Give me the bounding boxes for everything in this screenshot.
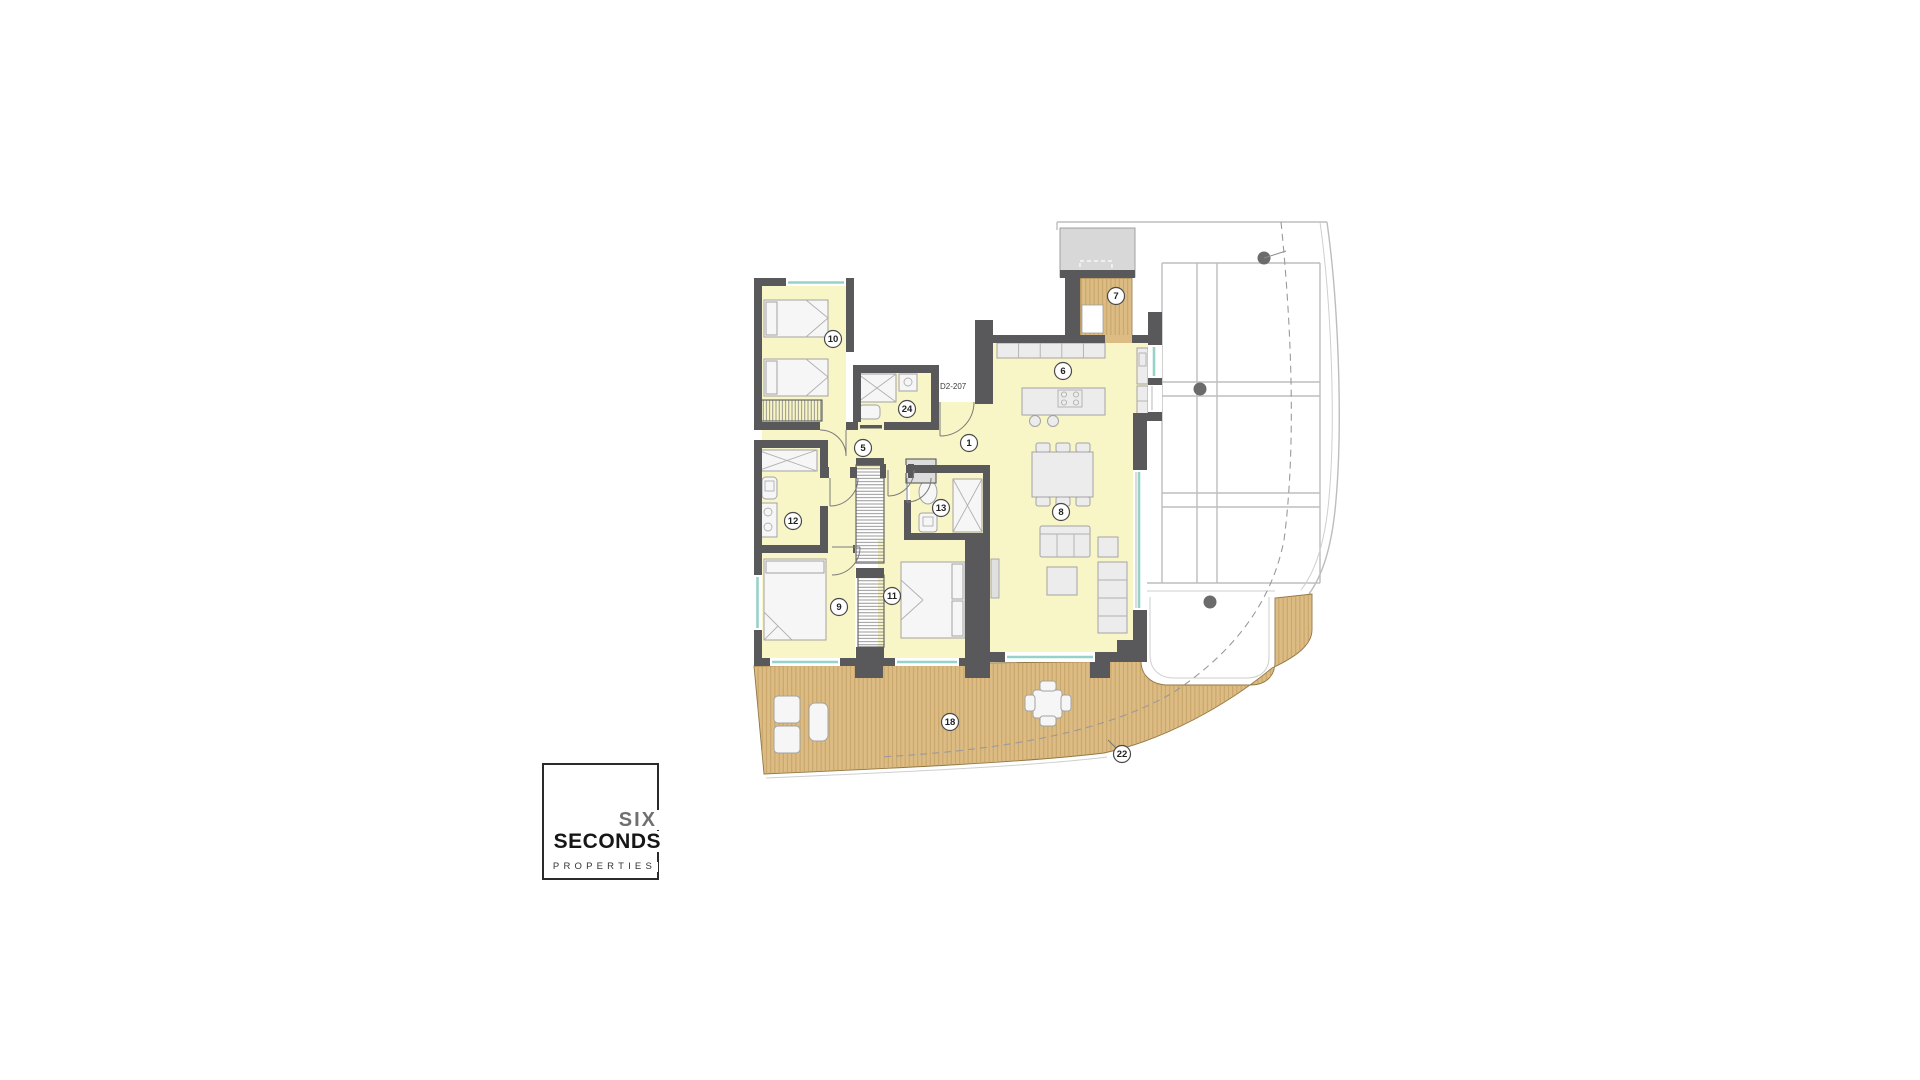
svg-text:8: 8 bbox=[1058, 507, 1063, 518]
logo-line-seconds: SECONDS bbox=[551, 831, 664, 852]
svg-text:22: 22 bbox=[1117, 749, 1128, 760]
room-label-drying-deck: 7 bbox=[1108, 288, 1125, 305]
room-label-terrace-perimeter: 22 bbox=[1114, 746, 1131, 763]
floorplan-page: 1 5 6 7 8 9 10 11 12 13 24 18 22 D2-207 … bbox=[0, 0, 1920, 1080]
logo-line-properties: PROPERTIES bbox=[551, 862, 658, 872]
svg-text:1: 1 bbox=[966, 438, 972, 449]
svg-text:24: 24 bbox=[902, 404, 913, 415]
unit-number-label: D2-207 bbox=[940, 382, 967, 391]
room-label-bathroom-2: 12 bbox=[785, 513, 802, 530]
column-dots bbox=[1194, 251, 1287, 609]
utility-unit bbox=[1082, 305, 1103, 333]
double-bed-9 bbox=[764, 559, 826, 640]
svg-text:5: 5 bbox=[860, 443, 866, 454]
room-label-entry: 1 bbox=[961, 435, 978, 452]
six-seconds-properties-logo: SIX SECONDS PROPERTIES bbox=[542, 763, 659, 880]
room-label-terrace: 18 bbox=[942, 714, 959, 731]
svg-text:12: 12 bbox=[788, 516, 799, 527]
room-label-kitchen: 6 bbox=[1055, 363, 1072, 380]
svg-text:9: 9 bbox=[836, 602, 841, 613]
room-label-bathroom-3: 13 bbox=[933, 500, 950, 517]
svg-text:13: 13 bbox=[936, 503, 947, 514]
room-label-living: 8 bbox=[1053, 504, 1070, 521]
logo-line-six: SIX bbox=[616, 810, 660, 830]
svg-text:18: 18 bbox=[945, 717, 956, 728]
room-label-hallway: 5 bbox=[855, 440, 872, 457]
svg-text:10: 10 bbox=[828, 334, 839, 345]
svg-text:11: 11 bbox=[887, 591, 898, 602]
room-label-bedroom-2: 9 bbox=[831, 599, 848, 616]
wardrobe-2 bbox=[858, 575, 884, 647]
room-label-bedroom-3: 11 bbox=[884, 588, 901, 605]
floorplan-drawing: 1 5 6 7 8 9 10 11 12 13 24 18 22 D2-207 bbox=[0, 0, 1920, 1080]
dining-set bbox=[1032, 443, 1093, 506]
room-label-bathroom-1: 24 bbox=[899, 401, 916, 418]
double-bed-11 bbox=[901, 562, 965, 638]
tv-sideboard bbox=[991, 559, 999, 598]
svg-text:6: 6 bbox=[1060, 366, 1065, 377]
svg-text:7: 7 bbox=[1113, 291, 1118, 302]
room-label-bedroom-1: 10 bbox=[825, 331, 842, 348]
wardrobe-band bbox=[760, 400, 822, 421]
roof-block bbox=[1060, 228, 1135, 277]
